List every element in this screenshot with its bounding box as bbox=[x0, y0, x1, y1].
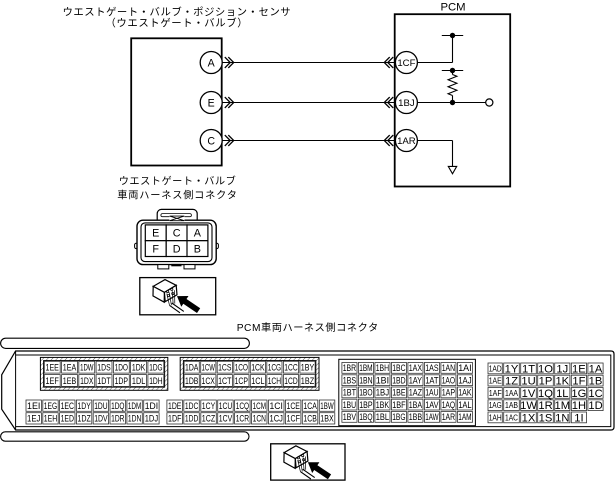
svg-text:1AP: 1AP bbox=[442, 388, 455, 398]
svg-text:1CM: 1CM bbox=[253, 401, 266, 411]
svg-text:1I: 1I bbox=[574, 413, 583, 425]
svg-text:1DZ: 1DZ bbox=[77, 414, 91, 424]
svg-text:1O: 1O bbox=[538, 364, 553, 376]
svg-text:1P: 1P bbox=[539, 376, 553, 388]
svg-text:1CV: 1CV bbox=[219, 414, 233, 424]
svg-text:1DU: 1DU bbox=[94, 401, 107, 411]
svg-text:1R: 1R bbox=[538, 400, 552, 412]
svg-text:1BF: 1BF bbox=[392, 400, 406, 410]
svg-text:1DY: 1DY bbox=[77, 401, 90, 411]
svg-text:1AQ: 1AQ bbox=[442, 400, 455, 410]
svg-text:PCM車両ハーネス側コネクタ: PCM車両ハーネス側コネクタ bbox=[237, 321, 379, 334]
svg-text:1DX: 1DX bbox=[80, 376, 93, 386]
svg-text:1AR: 1AR bbox=[397, 136, 416, 147]
svg-text:1AI: 1AI bbox=[458, 363, 471, 373]
svg-text:1Z: 1Z bbox=[505, 376, 518, 388]
svg-text:1AF: 1AF bbox=[489, 388, 502, 398]
svg-text:1BZ: 1BZ bbox=[301, 376, 315, 386]
svg-text:1CE: 1CE bbox=[287, 401, 300, 411]
svg-text:1EC: 1EC bbox=[61, 401, 75, 411]
svg-text:1BK: 1BK bbox=[376, 400, 389, 410]
svg-text:A: A bbox=[194, 228, 202, 240]
svg-text:1BG: 1BG bbox=[392, 412, 405, 422]
svg-text:1CG: 1CG bbox=[268, 363, 281, 373]
svg-text:C: C bbox=[207, 135, 215, 147]
svg-text:1AL: 1AL bbox=[458, 400, 471, 410]
svg-text:1DT: 1DT bbox=[97, 376, 111, 386]
svg-text:1EH: 1EH bbox=[44, 414, 57, 424]
svg-text:1G: 1G bbox=[571, 388, 586, 400]
svg-text:1DV: 1DV bbox=[94, 414, 108, 424]
svg-text:1CC: 1CC bbox=[284, 363, 298, 373]
svg-text:1BJ: 1BJ bbox=[376, 388, 389, 398]
svg-text:1J: 1J bbox=[556, 364, 568, 376]
svg-text:1AW: 1AW bbox=[425, 412, 439, 422]
svg-text:1E: 1E bbox=[572, 364, 586, 376]
svg-text:1AX: 1AX bbox=[409, 363, 422, 373]
svg-text:1DG: 1DG bbox=[149, 363, 162, 373]
svg-text:1U: 1U bbox=[521, 376, 535, 388]
svg-text:1AK: 1AK bbox=[458, 388, 471, 398]
svg-text:1D: 1D bbox=[588, 400, 602, 412]
svg-text:PCM: PCM bbox=[440, 1, 465, 13]
svg-text:1CL: 1CL bbox=[251, 376, 264, 386]
svg-text:1X: 1X bbox=[522, 413, 536, 425]
svg-text:1DS: 1DS bbox=[97, 363, 110, 373]
svg-text:1CF: 1CF bbox=[397, 58, 415, 69]
svg-text:1BR: 1BR bbox=[343, 363, 357, 373]
svg-text:1BB: 1BB bbox=[409, 412, 422, 422]
svg-text:1AM: 1AM bbox=[458, 412, 471, 422]
svg-text:E: E bbox=[208, 97, 215, 109]
svg-text:1BY: 1BY bbox=[301, 363, 314, 373]
svg-text:E: E bbox=[152, 228, 159, 240]
svg-text:1AV: 1AV bbox=[425, 400, 439, 410]
svg-text:1S: 1S bbox=[539, 413, 553, 425]
svg-text:1AR: 1AR bbox=[442, 412, 456, 422]
svg-text:1Y: 1Y bbox=[505, 364, 519, 376]
svg-text:1BJ: 1BJ bbox=[398, 98, 415, 109]
svg-text:1Q: 1Q bbox=[538, 388, 553, 400]
svg-text:1DR: 1DR bbox=[111, 414, 125, 424]
svg-text:1CS: 1CS bbox=[218, 363, 231, 373]
svg-text:1DL: 1DL bbox=[132, 376, 145, 386]
svg-text:1AJ: 1AJ bbox=[458, 376, 471, 386]
svg-text:1DM: 1DM bbox=[128, 401, 141, 411]
svg-text:1V: 1V bbox=[522, 388, 536, 400]
svg-text:1AA: 1AA bbox=[505, 388, 518, 398]
svg-text:1A: 1A bbox=[589, 364, 603, 376]
svg-text:1CT: 1CT bbox=[218, 376, 232, 386]
svg-text:1CX: 1CX bbox=[202, 376, 215, 386]
svg-text:1AU: 1AU bbox=[425, 388, 438, 398]
svg-text:1BH: 1BH bbox=[376, 363, 389, 373]
svg-text:1EF: 1EF bbox=[46, 376, 60, 386]
svg-text:1AY: 1AY bbox=[409, 376, 422, 386]
svg-text:1BV: 1BV bbox=[343, 412, 357, 422]
svg-text:ウエストゲート・バルブ: ウエストゲート・バルブ bbox=[119, 174, 237, 187]
svg-text:1BN: 1BN bbox=[359, 376, 372, 386]
svg-text:1CB: 1CB bbox=[303, 414, 316, 424]
svg-text:F: F bbox=[152, 244, 159, 256]
svg-text:1CP: 1CP bbox=[235, 376, 248, 386]
svg-text:1AZ: 1AZ bbox=[409, 388, 423, 398]
svg-text:1BM: 1BM bbox=[359, 363, 372, 373]
svg-text:1N: 1N bbox=[555, 413, 569, 425]
svg-text:1EG: 1EG bbox=[44, 401, 57, 411]
svg-text:1CA: 1CA bbox=[303, 401, 317, 411]
svg-text:1CW: 1CW bbox=[202, 363, 216, 373]
svg-text:1AO: 1AO bbox=[442, 376, 455, 386]
svg-text:1CU: 1CU bbox=[219, 401, 232, 411]
svg-text:1CY: 1CY bbox=[202, 401, 215, 411]
svg-text:1CK: 1CK bbox=[251, 363, 264, 373]
svg-text:1EA: 1EA bbox=[63, 363, 77, 373]
svg-text:1AG: 1AG bbox=[489, 400, 502, 410]
svg-text:1AB: 1AB bbox=[505, 400, 518, 410]
svg-text:1DK: 1DK bbox=[132, 363, 145, 373]
svg-text:1DP: 1DP bbox=[115, 376, 128, 386]
svg-text:1DO: 1DO bbox=[115, 363, 128, 373]
svg-text:1BA: 1BA bbox=[409, 400, 423, 410]
svg-text:1BE: 1BE bbox=[392, 388, 405, 398]
svg-text:1EE: 1EE bbox=[46, 363, 59, 373]
svg-text:1CN: 1CN bbox=[253, 414, 266, 424]
svg-text:1DA: 1DA bbox=[185, 363, 199, 373]
svg-text:D: D bbox=[173, 244, 181, 256]
svg-text:1BP: 1BP bbox=[359, 400, 372, 410]
svg-text:1CH: 1CH bbox=[268, 376, 281, 386]
svg-text:1K: 1K bbox=[555, 376, 569, 388]
svg-text:1BI: 1BI bbox=[376, 376, 389, 386]
svg-text:1EB: 1EB bbox=[63, 376, 76, 386]
svg-text:1CF: 1CF bbox=[287, 414, 301, 424]
svg-text:1T: 1T bbox=[522, 364, 535, 376]
svg-text:1BQ: 1BQ bbox=[359, 412, 372, 422]
svg-text:A: A bbox=[208, 57, 216, 69]
svg-text:1W: 1W bbox=[520, 400, 537, 412]
svg-text:1BT: 1BT bbox=[343, 388, 357, 398]
svg-text:1AC: 1AC bbox=[505, 412, 518, 422]
svg-text:C: C bbox=[173, 228, 181, 240]
svg-text:1CO: 1CO bbox=[235, 363, 248, 373]
svg-text:1CI: 1CI bbox=[270, 401, 283, 411]
svg-text:1BU: 1BU bbox=[343, 400, 356, 410]
svg-text:1DQ: 1DQ bbox=[111, 401, 124, 411]
svg-text:1B: 1B bbox=[589, 376, 603, 388]
svg-text:1BS: 1BS bbox=[343, 376, 356, 386]
svg-text:1CJ: 1CJ bbox=[270, 414, 283, 424]
svg-text:1BX: 1BX bbox=[320, 414, 333, 424]
svg-text:1DE: 1DE bbox=[168, 401, 181, 411]
svg-text:1DW: 1DW bbox=[80, 363, 94, 373]
svg-text:1F: 1F bbox=[572, 376, 585, 388]
svg-text:1CZ: 1CZ bbox=[202, 414, 216, 424]
svg-text:1H: 1H bbox=[572, 400, 586, 412]
svg-text:1DN: 1DN bbox=[128, 414, 141, 424]
svg-text:1DI: 1DI bbox=[145, 401, 158, 411]
svg-text:1DD: 1DD bbox=[185, 414, 199, 424]
svg-text:1AH: 1AH bbox=[489, 412, 502, 422]
svg-text:1CR: 1CR bbox=[236, 414, 250, 424]
svg-text:1DF: 1DF bbox=[168, 414, 182, 424]
svg-text:1CQ: 1CQ bbox=[236, 401, 249, 411]
svg-text:1DJ: 1DJ bbox=[145, 414, 158, 424]
svg-text:1DH: 1DH bbox=[149, 376, 162, 386]
svg-text:1BD: 1BD bbox=[392, 376, 406, 386]
svg-text:1ED: 1ED bbox=[61, 414, 75, 424]
svg-text:1BC: 1BC bbox=[392, 363, 406, 373]
svg-text:1CD: 1CD bbox=[284, 376, 298, 386]
svg-text:1M: 1M bbox=[555, 400, 571, 412]
svg-text:1L: 1L bbox=[556, 388, 568, 400]
svg-text:1AE: 1AE bbox=[489, 376, 502, 386]
svg-text:1C: 1C bbox=[588, 388, 602, 400]
svg-text:1AT: 1AT bbox=[425, 376, 439, 386]
svg-text:1DB: 1DB bbox=[185, 376, 198, 386]
svg-text:1AD: 1AD bbox=[489, 363, 502, 373]
svg-text:1DC: 1DC bbox=[185, 401, 199, 411]
svg-text:1AN: 1AN bbox=[442, 363, 455, 373]
svg-text:B: B bbox=[194, 244, 201, 256]
svg-text:1AS: 1AS bbox=[425, 363, 438, 373]
svg-text:ウエストゲート・バルブ・ポジション・センサ: ウエストゲート・バルブ・ポジション・センサ bbox=[62, 5, 291, 18]
svg-text:（ウエストゲート・バルブ）: （ウエストゲート・バルブ） bbox=[105, 17, 248, 30]
svg-text:1BO: 1BO bbox=[359, 388, 372, 398]
svg-text:1BL: 1BL bbox=[376, 412, 389, 422]
svg-text:車両ハーネス側コネクタ: 車両ハーネス側コネクタ bbox=[117, 188, 237, 201]
svg-text:1BW: 1BW bbox=[320, 401, 334, 411]
svg-text:1EI: 1EI bbox=[27, 401, 40, 411]
svg-text:1EJ: 1EJ bbox=[27, 414, 40, 424]
